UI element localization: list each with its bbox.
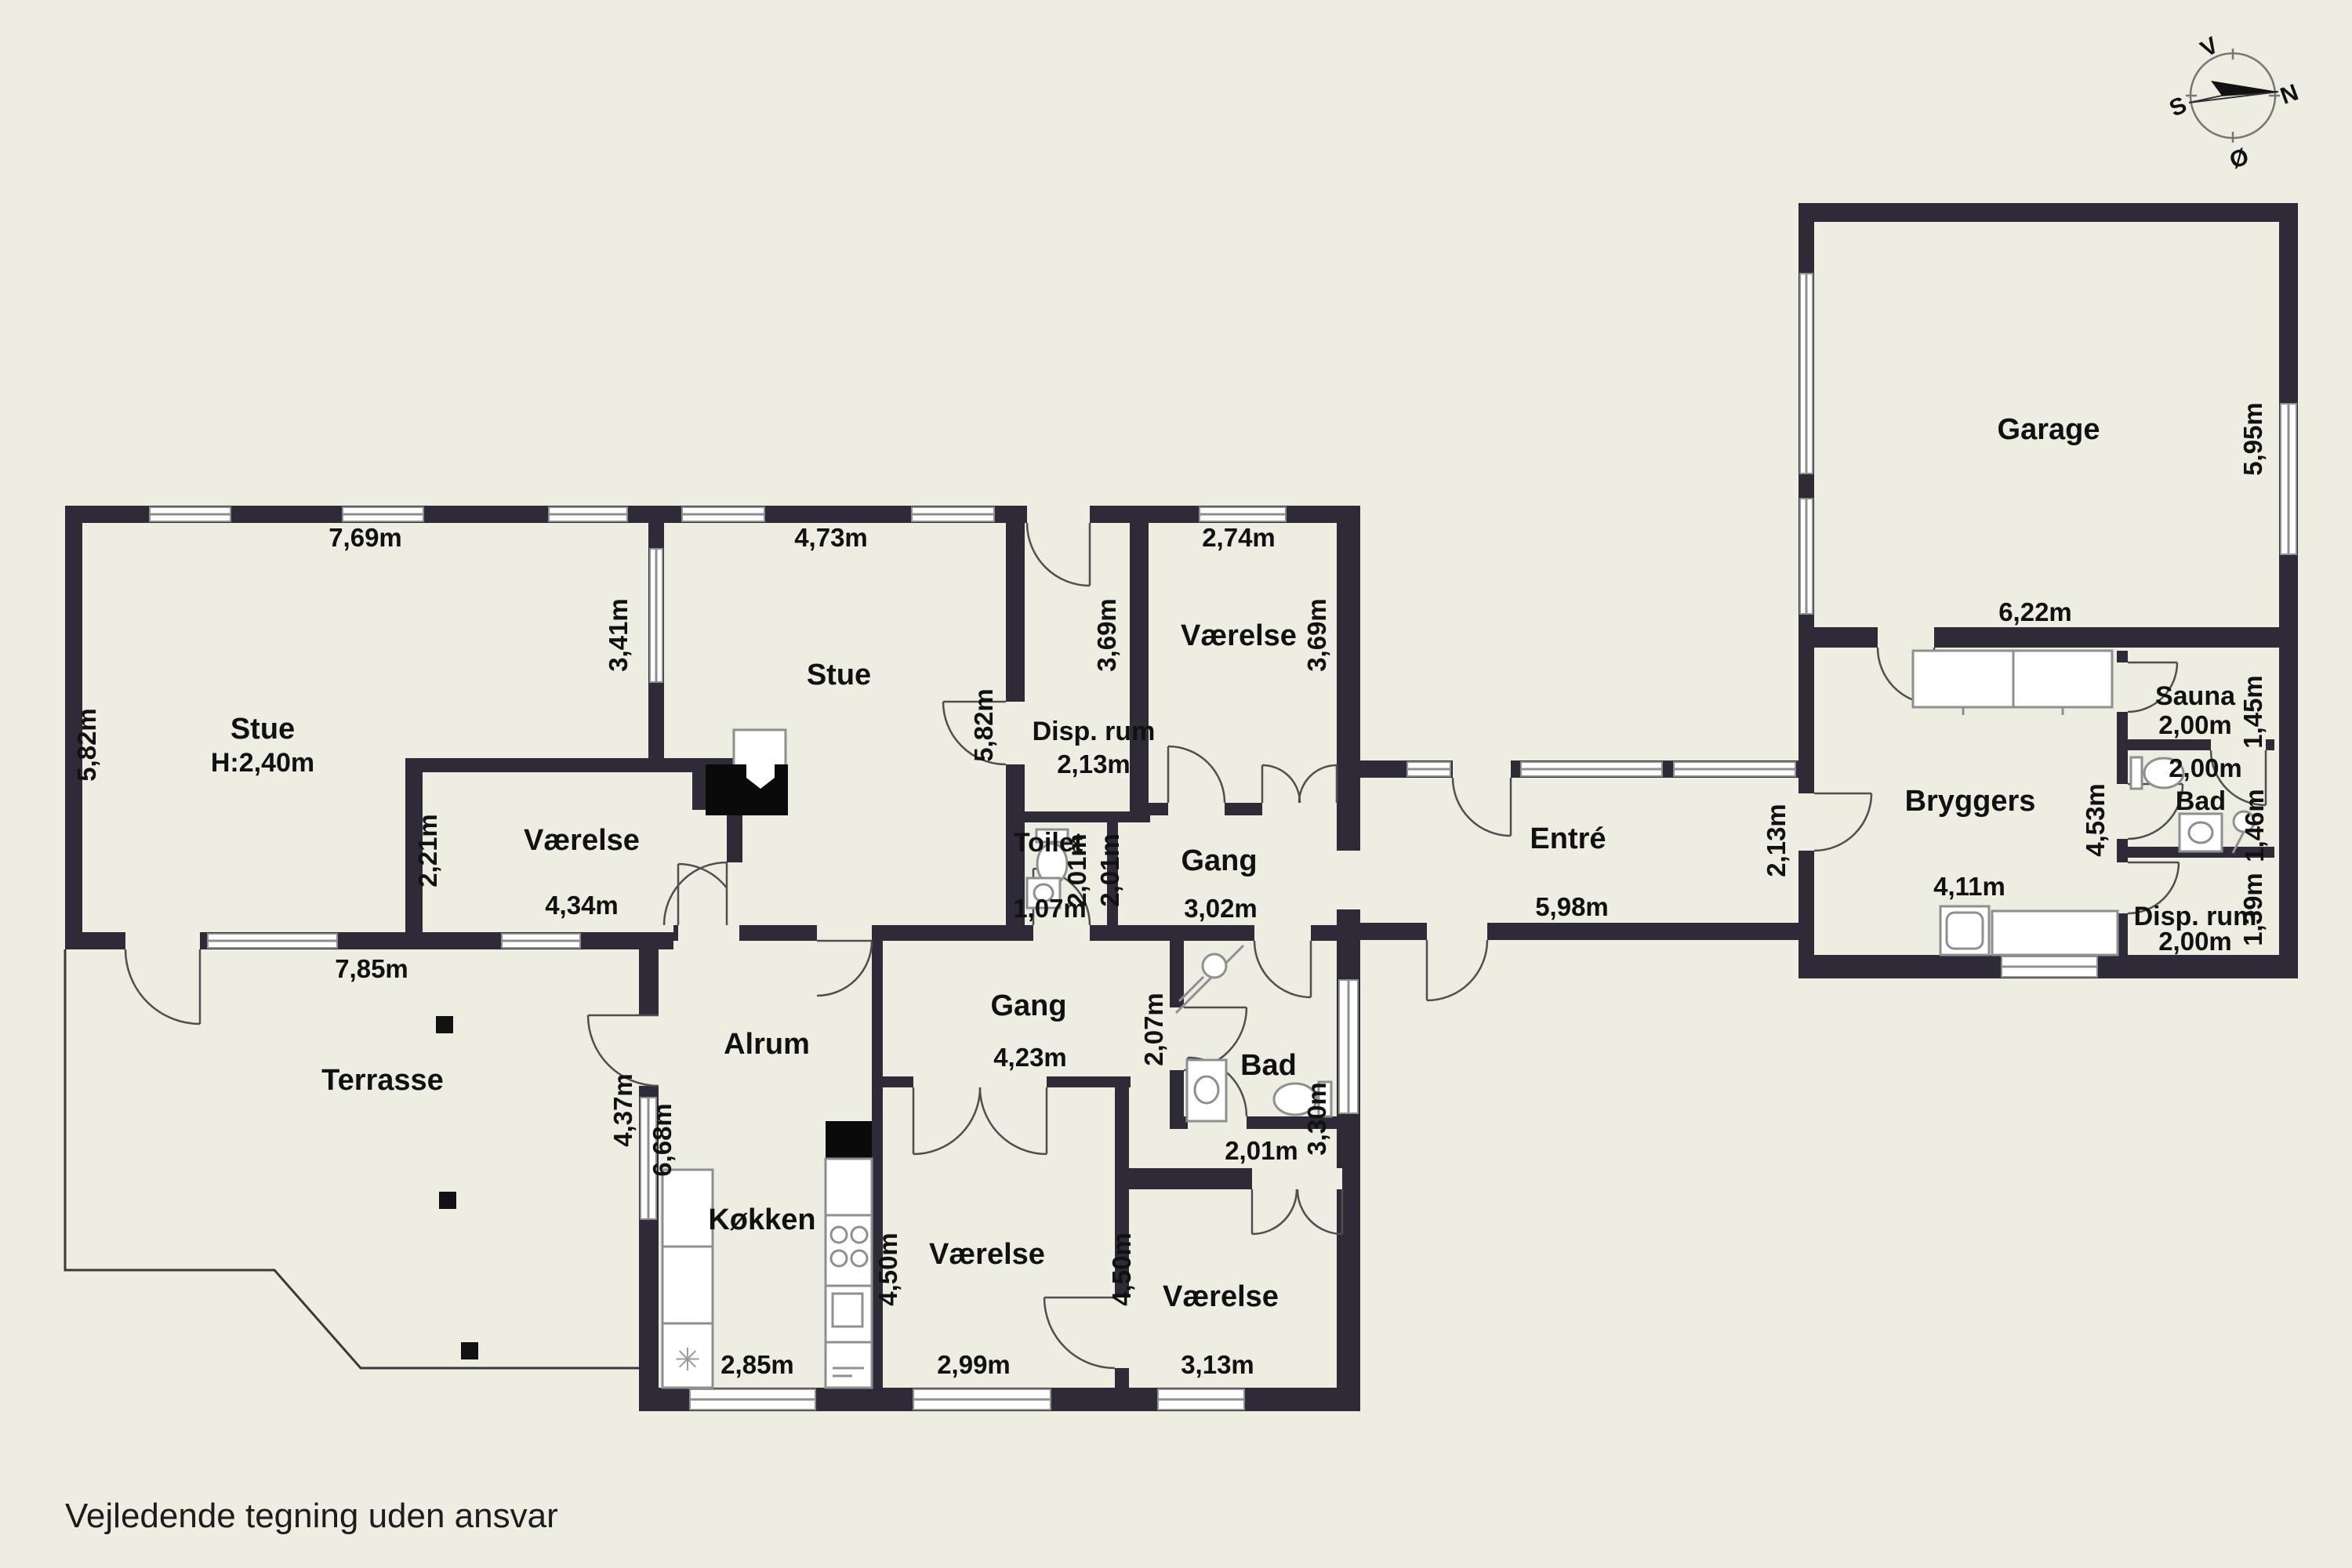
dim-label: 3,30m (1302, 1082, 1331, 1156)
dim-label: 2,01m (1095, 833, 1124, 907)
window (2281, 404, 2296, 554)
kitchen-fridge-icon: ✳ (662, 1170, 713, 1388)
dim-label: 2,00m (2169, 753, 2242, 782)
floor-plan-page: ✳ (0, 0, 2352, 1568)
background (0, 0, 2352, 1568)
window (912, 507, 994, 521)
window (549, 507, 627, 521)
window (1800, 274, 1813, 474)
dim-label: 2,21m (413, 814, 442, 887)
sink-icon (2180, 814, 2222, 851)
room-label-kokken: Køkken (708, 1203, 815, 1236)
dim-label: 3,41m (604, 598, 633, 672)
dim-label: 4,53m (2081, 783, 2110, 857)
window (1800, 499, 1813, 614)
svg-text:✳: ✳ (674, 1343, 701, 1377)
opening (1337, 851, 1360, 909)
dim-label: 5,95m (2238, 402, 2267, 476)
dim-label: 2,13m (1057, 750, 1131, 779)
window (1158, 1389, 1244, 1410)
dim-label: 1,45m (2238, 675, 2267, 749)
room-label-vaerelse-bm: Værelse (929, 1238, 1045, 1271)
window (690, 1389, 815, 1410)
room-label-stue-mid: Stue (807, 659, 871, 691)
window (343, 507, 423, 521)
window (2002, 956, 2097, 977)
room-label-vaerelse-tr: Værelse (1181, 619, 1297, 652)
washing-machine-icon (1940, 906, 1989, 955)
dim-label: 4,50m (873, 1232, 902, 1306)
dim-label: 4,34m (545, 891, 619, 920)
dim-label: 5,82m (72, 708, 101, 782)
window (1521, 762, 1662, 776)
window (682, 507, 764, 521)
ceiling-height-label: H:2,40m (211, 748, 314, 778)
dim-label: 4,23m (993, 1043, 1067, 1072)
dim-label: 2,07m (1139, 993, 1168, 1066)
window (208, 934, 337, 948)
dim-label: 2,99m (937, 1350, 1011, 1379)
room-label-entre: Entré (1530, 822, 1606, 855)
dim-label: 3,13m (1181, 1350, 1254, 1379)
window (502, 934, 580, 948)
dim-label: 2,00m (2158, 710, 2232, 739)
window (913, 1389, 1051, 1410)
room-label-disp-mid: Disp. rum (1033, 717, 1156, 746)
dim-label: 7,85m (335, 954, 408, 983)
dim-label: 2,01m (1062, 833, 1091, 907)
dim-label: 3,69m (1092, 598, 1121, 672)
room-label-bad-right: Bad (2176, 786, 2226, 816)
cabinet-icon (1913, 651, 2112, 715)
dim-label: 6,22m (1998, 597, 2072, 626)
floor-plan-drawing: ✳ (0, 0, 2352, 1568)
room-label-alrum: Alrum (724, 1028, 810, 1061)
dim-label: 4,50m (1107, 1232, 1136, 1306)
dim-label: 4,11m (1933, 872, 2005, 901)
window (1339, 980, 1358, 1113)
dim-label: 6,68m (648, 1103, 677, 1177)
window (1407, 762, 1450, 776)
dim-label: 2,85m (720, 1350, 794, 1379)
room-label-vaerelse-left: Værelse (524, 824, 640, 857)
dim-label: 5,98m (1535, 892, 1609, 921)
kitchen-counter-icon (826, 1121, 872, 1388)
dim-label: 1,46m (2240, 789, 2269, 862)
dim-label: 4,37m (608, 1073, 637, 1147)
room-label-bryggers: Bryggers (1905, 785, 2036, 818)
disclaimer-text: Vejledende tegning uden ansvar (65, 1497, 558, 1535)
dim-label: 7,69m (328, 523, 402, 552)
window (1674, 762, 1795, 776)
window (650, 549, 662, 682)
room-label-terrasse: Terrasse (321, 1064, 444, 1097)
room-label-vaerelse-br: Værelse (1163, 1280, 1279, 1313)
counter-icon (1992, 911, 2118, 955)
dim-label: 3,02m (1184, 894, 1258, 923)
dim-label: 3,69m (1302, 598, 1331, 672)
dim-label: 2,00m (2158, 927, 2232, 956)
dim-label: 5,82m (969, 688, 998, 762)
room-label-sauna: Sauna (2155, 681, 2236, 711)
room-label-gang-upper: Gang (1181, 844, 1257, 877)
room-label-gang-lower: Gang (990, 989, 1066, 1022)
window (1200, 507, 1286, 521)
dim-label: 1,39m (2238, 873, 2267, 946)
dim-label: 2,74m (1202, 523, 1276, 552)
room-label-garage: Garage (1998, 413, 2100, 446)
room-label-bad-lower: Bad (1240, 1049, 1297, 1082)
dim-label: 2,13m (1762, 804, 1791, 877)
room-label-stue-left: Stue (230, 713, 295, 746)
dim-label: 4,73m (794, 523, 868, 552)
window (150, 507, 230, 521)
sink-icon (1187, 1060, 1226, 1121)
dim-label: 2,01m (1225, 1136, 1298, 1165)
